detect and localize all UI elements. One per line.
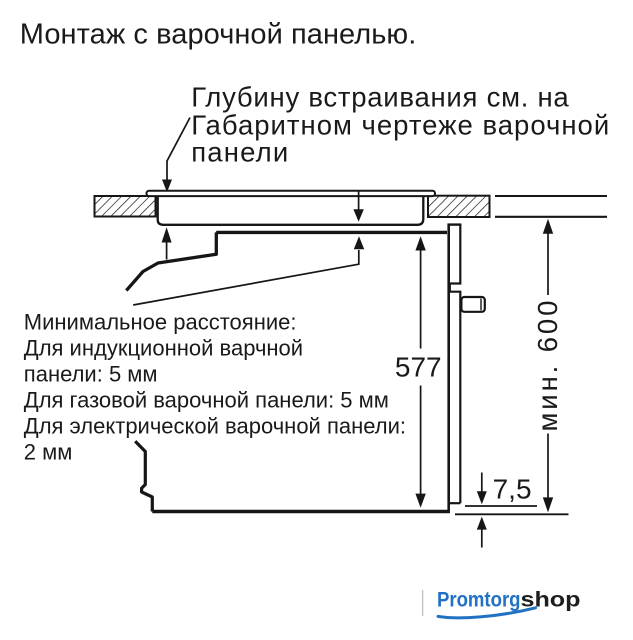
svg-text:577: 577	[395, 352, 442, 383]
svg-text:мин. 600: мин. 600	[532, 298, 563, 432]
svg-text:панели: 5 мм: панели: 5 мм	[24, 362, 158, 387]
svg-text:Глубину встраивания см. на: Глубину встраивания см. на	[191, 82, 569, 113]
svg-text:Promtorg: Promtorg	[437, 588, 521, 612]
svg-text:2 мм: 2 мм	[24, 440, 73, 465]
svg-text:Для индукционной варчной: Для индукционной варчной	[24, 336, 303, 361]
svg-text:Для электрической варочной пан: Для электрической варочной панели:	[24, 414, 406, 439]
svg-text:Минимальное расстояние:: Минимальное расстояние:	[24, 310, 297, 335]
svg-text:Монтаж с варочной панелью.: Монтаж с варочной панелью.	[20, 19, 417, 51]
svg-text:7,5: 7,5	[493, 474, 532, 505]
svg-text:Для газовой варочной панели: 5: Для газовой варочной панели: 5 мм	[24, 388, 389, 413]
svg-text:панели: панели	[191, 137, 288, 168]
